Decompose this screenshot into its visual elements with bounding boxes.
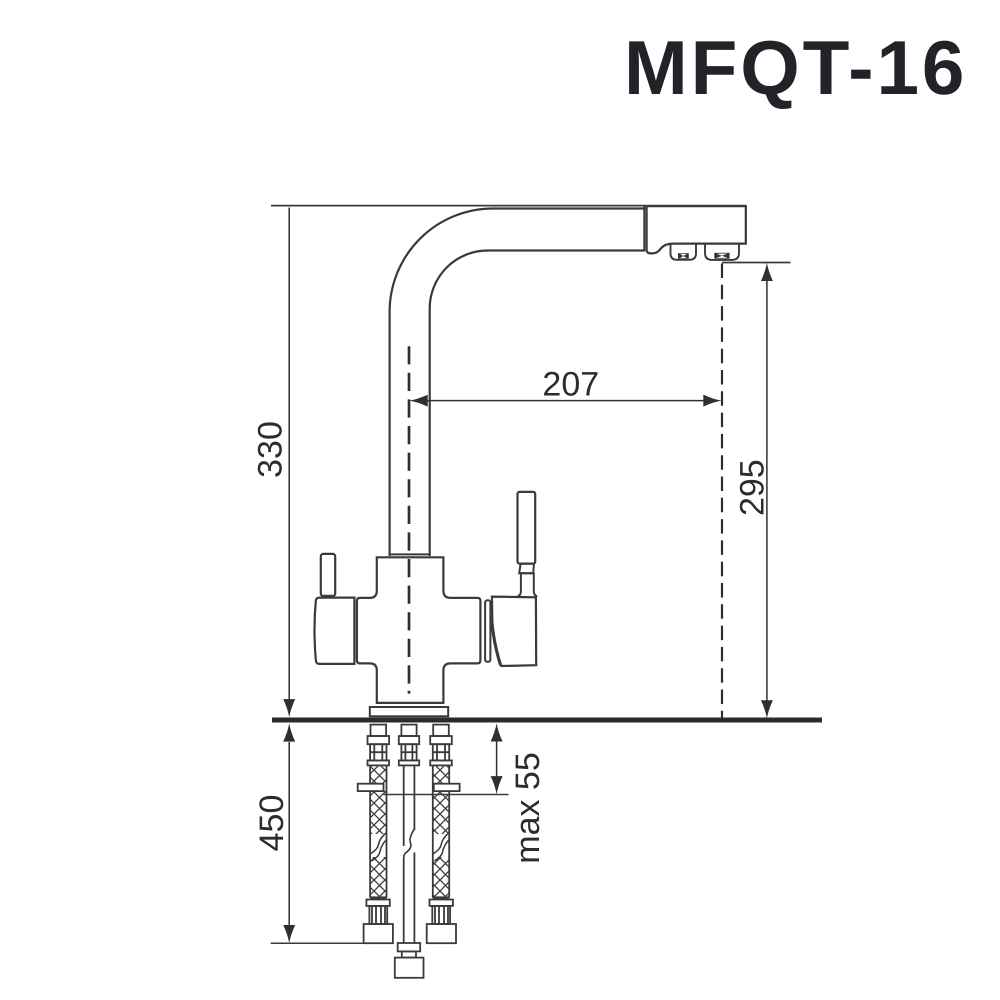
svg-text:330: 330 xyxy=(252,421,290,478)
svg-text:450: 450 xyxy=(253,795,291,852)
svg-text:max 55: max 55 xyxy=(509,752,547,864)
svg-text:MFQT-16: MFQT-16 xyxy=(624,26,967,111)
svg-text:207: 207 xyxy=(542,366,599,404)
svg-text:295: 295 xyxy=(734,459,772,516)
